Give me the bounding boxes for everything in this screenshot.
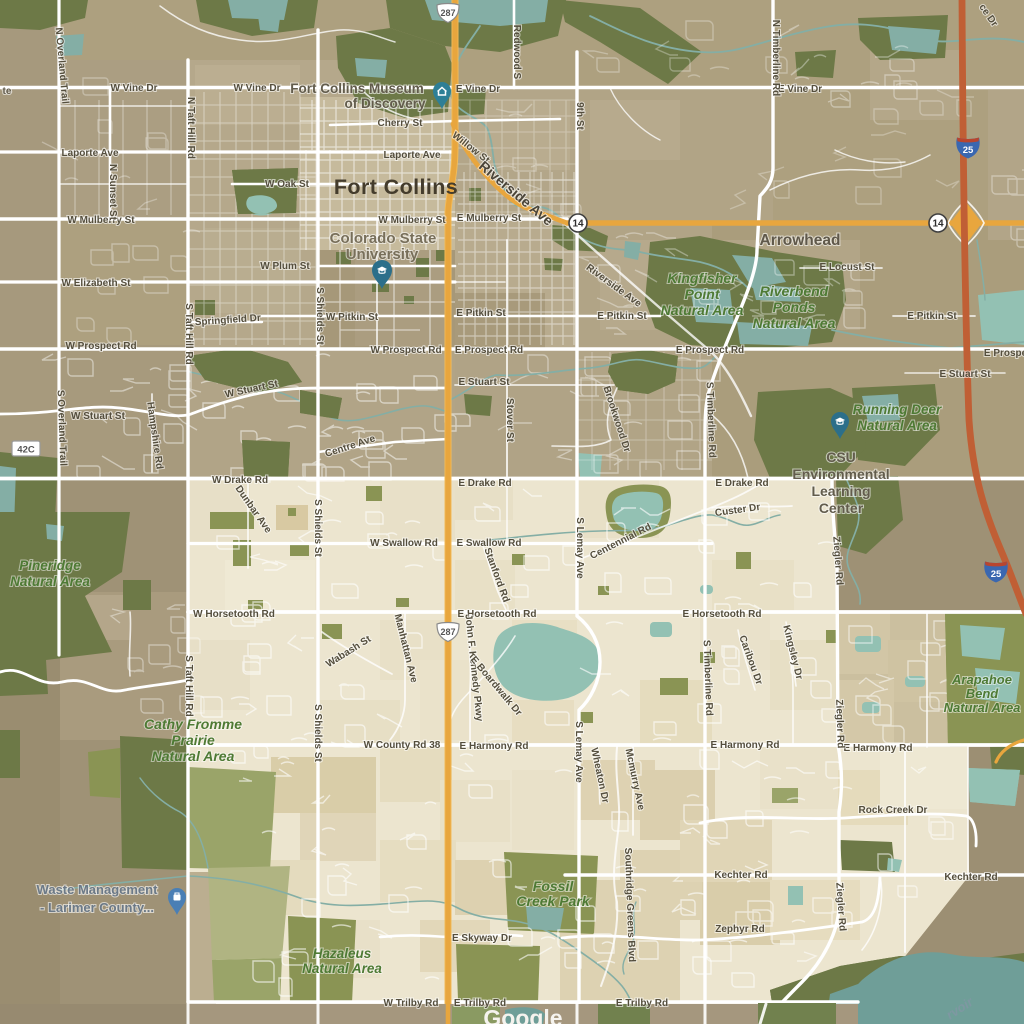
svg-text:Riverbend: Riverbend xyxy=(760,283,829,299)
svg-text:287: 287 xyxy=(440,627,455,637)
svg-text:N Sunset St: N Sunset St xyxy=(107,164,118,221)
svg-text:9th St: 9th St xyxy=(574,102,585,130)
svg-text:Natural Area: Natural Area xyxy=(10,574,90,589)
svg-text:Fossil: Fossil xyxy=(533,878,575,894)
svg-text:W County Rd 38: W County Rd 38 xyxy=(364,740,441,751)
svg-text:Ziegler Rd: Ziegler Rd xyxy=(833,699,846,748)
svg-text:Google: Google xyxy=(483,1005,562,1024)
svg-text:Running Deer: Running Deer xyxy=(853,402,942,417)
svg-text:Arapahoe: Arapahoe xyxy=(951,672,1012,687)
svg-text:E Drake Rd: E Drake Rd xyxy=(715,478,768,489)
svg-text:42C: 42C xyxy=(17,445,35,456)
svg-text:W Trilby Rd: W Trilby Rd xyxy=(384,998,439,1009)
svg-text:Natural Area: Natural Area xyxy=(857,418,937,433)
svg-text:E Pitkin St: E Pitkin St xyxy=(597,311,647,322)
svg-text:Arrowhead: Arrowhead xyxy=(760,232,841,249)
svg-text:E Harmony Rd: E Harmony Rd xyxy=(711,740,780,751)
svg-text:W Plum St: W Plum St xyxy=(260,261,310,272)
svg-text:E Locust St: E Locust St xyxy=(819,262,875,273)
svg-text:Cherry St: Cherry St xyxy=(377,118,423,129)
svg-text:Redwood S: Redwood S xyxy=(511,25,522,80)
svg-text:W Stuart St: W Stuart St xyxy=(71,411,126,422)
svg-text:of Discovery: of Discovery xyxy=(344,96,426,111)
svg-text:E Prospect: E Prospect xyxy=(984,348,1024,359)
svg-text:te: te xyxy=(3,86,12,97)
svg-text:14: 14 xyxy=(572,219,584,230)
svg-text:- Larimer County...: - Larimer County... xyxy=(40,900,154,915)
svg-text:Point: Point xyxy=(685,286,721,302)
svg-text:CSU: CSU xyxy=(826,449,856,465)
svg-text:Rock Creek Dr: Rock Creek Dr xyxy=(859,805,928,816)
svg-text:Natural Area: Natural Area xyxy=(302,961,382,976)
svg-text:Kechter Rd: Kechter Rd xyxy=(944,872,997,883)
svg-text:25: 25 xyxy=(963,145,974,156)
svg-text:W Vine Dr: W Vine Dr xyxy=(233,83,280,94)
svg-text:Stover St: Stover St xyxy=(504,398,515,443)
svg-text:Zephyr Rd: Zephyr Rd xyxy=(715,924,764,935)
svg-text:E Drake Rd: E Drake Rd xyxy=(458,478,511,489)
svg-text:W Oak St: W Oak St xyxy=(265,179,310,190)
svg-text:E Trilby Rd: E Trilby Rd xyxy=(616,998,668,1009)
svg-text:W Horsetooth Rd: W Horsetooth Rd xyxy=(193,609,275,620)
svg-text:287: 287 xyxy=(440,8,455,18)
svg-text:S Taft Hill Rd: S Taft Hill Rd xyxy=(183,655,194,716)
svg-text:E Pitkin St: E Pitkin St xyxy=(907,311,957,322)
svg-text:Center: Center xyxy=(819,500,864,516)
svg-text:S Lemay Ave: S Lemay Ave xyxy=(574,517,585,579)
svg-text:Natural Area: Natural Area xyxy=(944,700,1021,715)
svg-text:W Swallow Rd: W Swallow Rd xyxy=(370,538,438,549)
svg-text:Hazaleus: Hazaleus xyxy=(313,946,372,961)
svg-text:Fort Collins: Fort Collins xyxy=(334,175,458,199)
svg-text:S Taft Hill Rd: S Taft Hill Rd xyxy=(183,303,194,364)
svg-text:W Vine Dr: W Vine Dr xyxy=(110,83,157,94)
svg-text:N Taft Hill Rd: N Taft Hill Rd xyxy=(185,97,196,159)
svg-text:S Lemay Ave: S Lemay Ave xyxy=(573,721,584,783)
svg-text:Fort Collins Museum: Fort Collins Museum xyxy=(290,81,424,96)
svg-text:E Prospect Rd: E Prospect Rd xyxy=(455,345,523,356)
svg-text:Cathy Fromme: Cathy Fromme xyxy=(144,716,242,732)
svg-text:Colorado State: Colorado State xyxy=(330,230,437,247)
svg-text:Environmental: Environmental xyxy=(792,466,889,482)
svg-text:Pineridge: Pineridge xyxy=(19,558,81,573)
svg-text:Natural Area: Natural Area xyxy=(152,748,235,764)
svg-text:E Stuart St: E Stuart St xyxy=(939,369,991,380)
svg-text:W Elizabeth St: W Elizabeth St xyxy=(62,278,132,289)
svg-text:W Mulberry St: W Mulberry St xyxy=(67,215,135,226)
svg-text:Laporte Ave: Laporte Ave xyxy=(383,150,440,161)
svg-text:E Harmony Rd: E Harmony Rd xyxy=(460,741,529,752)
svg-text:Laporte Ave: Laporte Ave xyxy=(61,148,118,159)
svg-text:W Prospect Rd: W Prospect Rd xyxy=(65,341,136,352)
svg-text:S Shields St: S Shields St xyxy=(312,704,323,762)
svg-text:E Skyway Dr: E Skyway Dr xyxy=(452,933,512,944)
svg-text:Natural Area: Natural Area xyxy=(661,302,744,318)
svg-text:Kechter Rd: Kechter Rd xyxy=(714,870,767,881)
svg-text:S Shields St: S Shields St xyxy=(314,287,325,345)
svg-text:Kingfisher: Kingfisher xyxy=(667,270,738,286)
svg-text:E Vine Dr: E Vine Dr xyxy=(456,84,500,95)
svg-text:Ponds: Ponds xyxy=(773,299,816,315)
svg-text:S Shields St: S Shields St xyxy=(312,499,323,557)
svg-text:W Mulberry St: W Mulberry St xyxy=(378,215,446,226)
svg-text:Natural Area: Natural Area xyxy=(753,315,836,331)
svg-text:14: 14 xyxy=(932,219,944,230)
svg-text:Learning: Learning xyxy=(811,483,870,499)
svg-text:Waste Management: Waste Management xyxy=(37,882,159,897)
svg-text:E Mulberry St: E Mulberry St xyxy=(457,213,522,224)
svg-text:Creek Park: Creek Park xyxy=(516,893,590,909)
svg-text:25: 25 xyxy=(991,569,1002,580)
svg-text:N Timberline Rd: N Timberline Rd xyxy=(770,20,781,97)
svg-text:E Prospect Rd: E Prospect Rd xyxy=(676,345,744,356)
svg-text:E Harmony Rd: E Harmony Rd xyxy=(844,743,913,754)
svg-text:E Vine Dr: E Vine Dr xyxy=(778,84,822,95)
svg-text:E Stuart St: E Stuart St xyxy=(458,377,510,388)
svg-text:E Horsetooth Rd: E Horsetooth Rd xyxy=(683,609,762,620)
svg-text:Prairie: Prairie xyxy=(171,732,215,748)
svg-text:W Pitkin St: W Pitkin St xyxy=(326,312,379,323)
svg-text:W Prospect Rd: W Prospect Rd xyxy=(370,345,441,356)
svg-text:Bend: Bend xyxy=(966,686,1000,701)
svg-text:E Pitkin St: E Pitkin St xyxy=(456,308,506,319)
